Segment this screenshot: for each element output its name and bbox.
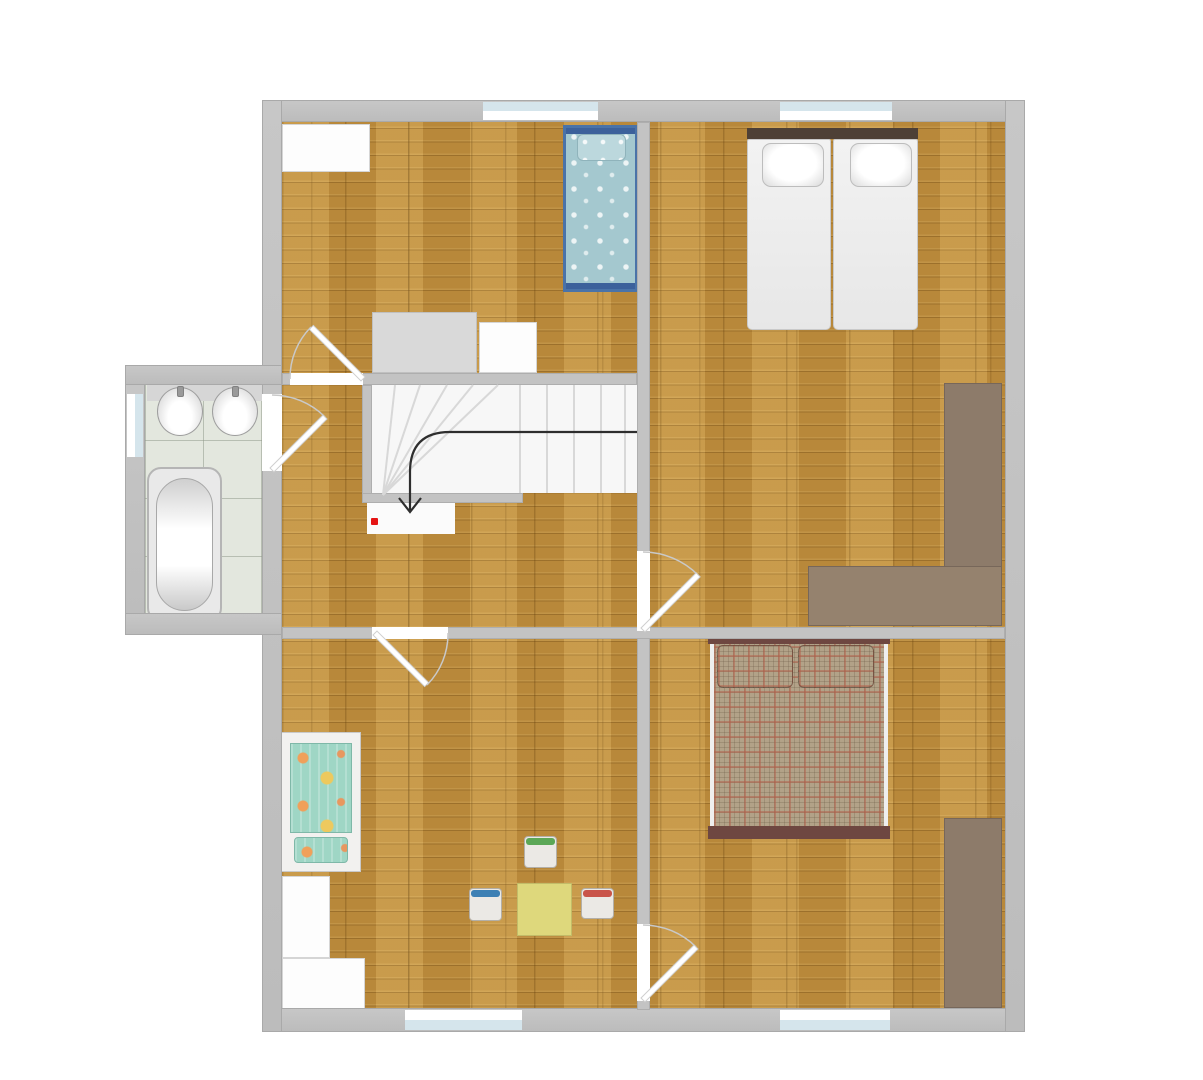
corner-desk-vertical <box>944 383 1002 569</box>
dresser-gray-upper-left <box>372 312 477 373</box>
pillow-right <box>798 645 874 688</box>
bathroom-wall-top <box>125 365 282 385</box>
door-opening-lower-right-bedroom <box>637 924 650 1001</box>
toddler-bed-pillow <box>294 837 348 863</box>
pillow-left <box>717 645 793 688</box>
bathtub-basin <box>156 478 213 611</box>
bathtub <box>147 467 222 622</box>
red-position-marker <box>371 518 378 525</box>
double-bed-white <box>747 128 918 330</box>
wall-top <box>262 100 1025 122</box>
stair-landing <box>367 503 455 534</box>
staircase <box>372 385 637 493</box>
door-opening-upper-left-bedroom <box>290 373 363 385</box>
wall-bottom <box>262 1008 1025 1032</box>
wardrobe-upper-left <box>282 124 370 172</box>
door-opening-upper-right-bedroom <box>637 551 650 631</box>
pillow-left <box>762 143 824 187</box>
door-opening-bathroom <box>262 394 282 471</box>
chair-back-green <box>526 838 555 845</box>
wardrobe-lower-right <box>944 818 1002 1008</box>
dresser-children-1 <box>282 876 330 958</box>
chair-back-blue <box>471 890 500 897</box>
bed-footboard <box>708 826 890 839</box>
window-sill <box>483 111 598 120</box>
window-glass <box>780 1020 890 1030</box>
window-sill <box>780 111 892 120</box>
window-top-upper-left-bedroom <box>483 102 598 120</box>
window-sill <box>780 1010 890 1020</box>
window-glass <box>405 1020 522 1030</box>
bed-footboard <box>566 283 635 289</box>
window-bathroom <box>127 394 143 457</box>
window-bottom-lower-right-bedroom <box>780 1010 890 1030</box>
dresser-children-2 <box>282 958 365 1010</box>
play-chair-green <box>524 836 557 868</box>
window-top-upper-right-bedroom <box>780 102 892 120</box>
door-opening-children-room <box>372 627 448 639</box>
wall-bedrooms-divider-upper <box>637 122 650 552</box>
window-bottom-children-room <box>405 1010 522 1030</box>
faucet-1 <box>177 386 184 397</box>
bed-headboard <box>747 128 918 139</box>
wall-bedrooms-divider-lower <box>637 1000 650 1010</box>
dresser-white-upper-left <box>479 322 537 373</box>
window-sill <box>127 394 135 457</box>
play-chair-blue <box>469 888 502 921</box>
window-glass <box>483 102 598 111</box>
bathroom-wall-bottom <box>125 613 282 635</box>
toddler-bed <box>281 732 361 872</box>
toddler-bed-duvet <box>290 743 352 833</box>
floor-plan-canvas <box>0 0 1203 1080</box>
play-table <box>517 883 572 936</box>
stair-side-wall <box>362 385 372 501</box>
wall-bedrooms-divider-middle <box>637 630 650 925</box>
faucet-2 <box>232 386 239 397</box>
pillow <box>577 134 626 161</box>
corner-desk-horizontal <box>808 566 1002 626</box>
window-glass <box>135 394 143 457</box>
wall-right <box>1005 100 1025 1032</box>
single-bed-blue <box>563 125 638 292</box>
double-bed-plaid <box>708 632 890 841</box>
play-chair-red <box>581 888 614 919</box>
window-sill <box>405 1010 522 1020</box>
chair-back-red <box>583 890 612 897</box>
wall-left <box>262 100 282 1032</box>
window-glass <box>780 102 892 111</box>
stair-end-wall <box>362 493 523 503</box>
pillow-right <box>850 143 912 187</box>
